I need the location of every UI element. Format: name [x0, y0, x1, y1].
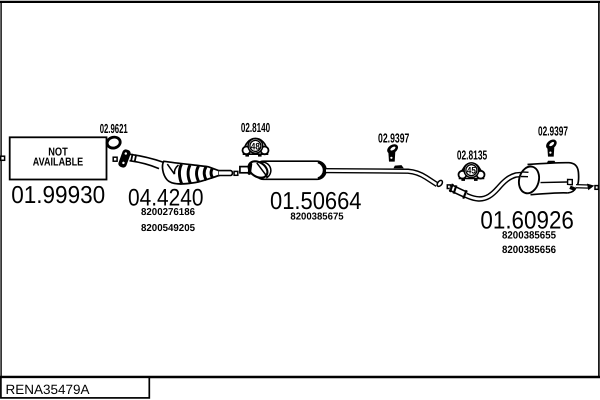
svg-text:8200549205: 8200549205: [141, 223, 195, 234]
svg-text:AVAILABLE: AVAILABLE: [33, 157, 84, 169]
svg-text:02.8135: 02.8135: [457, 147, 487, 162]
svg-text:8200276186: 8200276186: [141, 207, 195, 218]
svg-text:8200385655: 8200385655: [502, 230, 556, 242]
svg-text:02.9397: 02.9397: [538, 124, 568, 139]
svg-text:8200385675: 8200385675: [290, 211, 344, 222]
svg-text:02.8140: 02.8140: [241, 120, 270, 135]
svg-text:02.9397: 02.9397: [378, 130, 409, 145]
svg-text:01.99930: 01.99930: [11, 182, 105, 209]
svg-text:02.9621: 02.9621: [100, 121, 128, 136]
svg-text:RENA35479A: RENA35479A: [6, 382, 90, 397]
svg-text:45: 45: [467, 166, 477, 177]
svg-text:8200385656: 8200385656: [502, 244, 556, 256]
svg-text:48: 48: [251, 141, 260, 152]
